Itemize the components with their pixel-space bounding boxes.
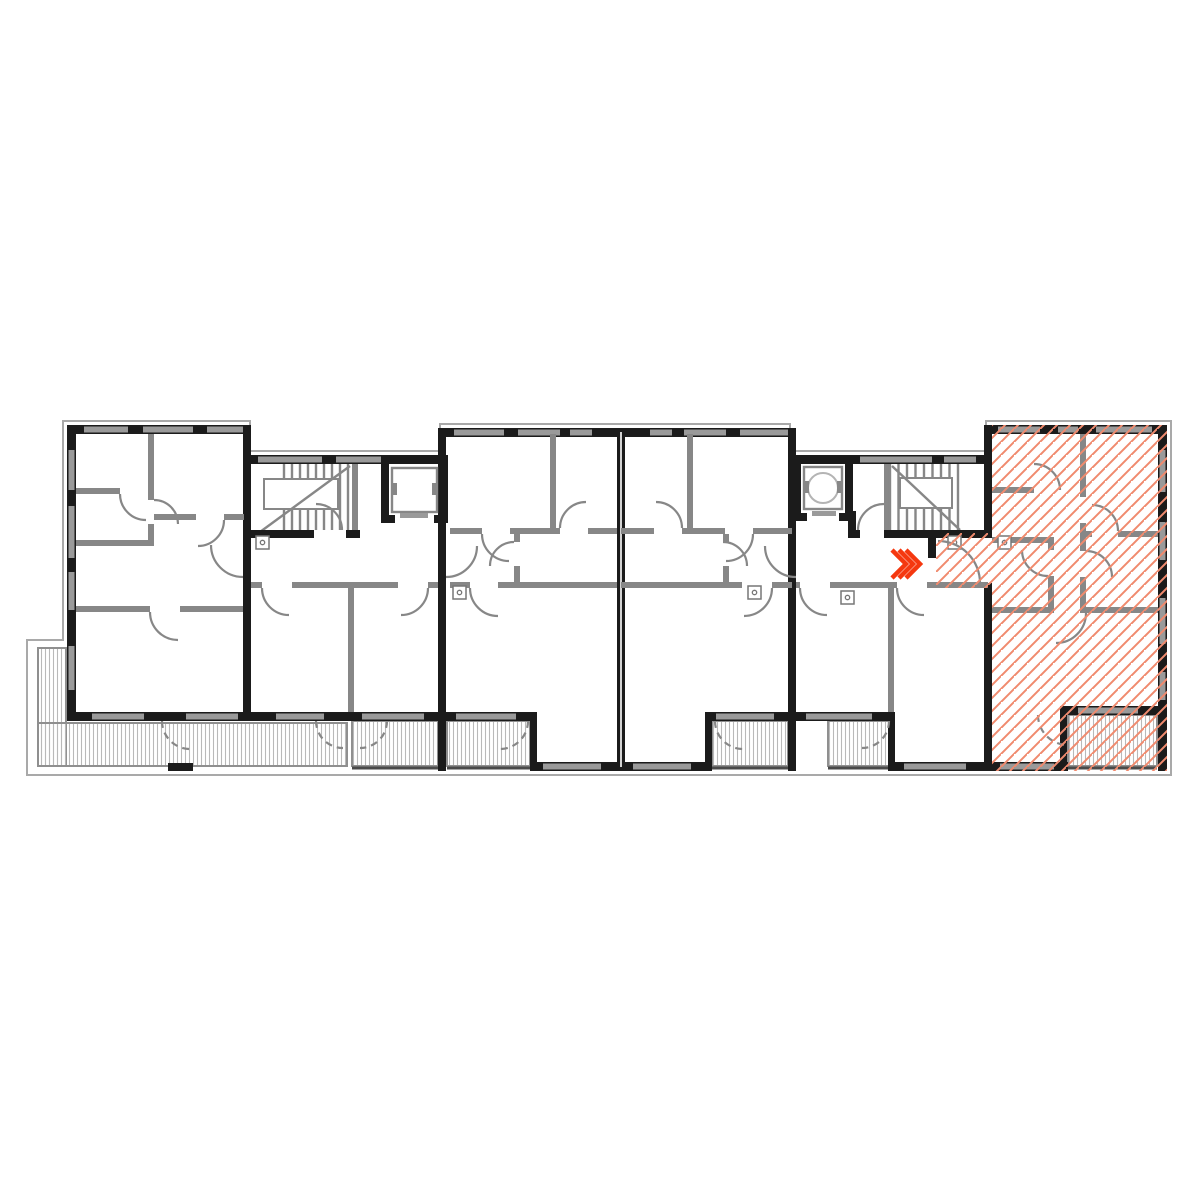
terrace-step	[168, 763, 193, 771]
intercom-icon	[748, 586, 761, 599]
selected-unit-hatch	[936, 425, 1167, 771]
intercom-icon	[841, 591, 854, 604]
unit-center-east	[621, 434, 792, 749]
balcony-center-east	[712, 721, 788, 768]
floor-plan-svg	[0, 0, 1200, 1200]
east-core	[765, 455, 988, 748]
unit-west-end	[76, 434, 244, 749]
balcony-center-west	[447, 721, 530, 768]
balcony-west-core	[352, 721, 438, 768]
entrance-arrow-icon	[892, 550, 920, 578]
west-staircase	[243, 464, 360, 538]
floor-plan-canvas	[0, 0, 1200, 1200]
unit-center-west	[450, 434, 617, 749]
east-elevator-icon	[793, 455, 853, 521]
west-elevator-icon	[381, 455, 448, 523]
east-staircase	[848, 464, 988, 538]
balcony-east-core	[828, 721, 890, 768]
intercom-icon	[256, 536, 269, 549]
west-terrace	[38, 648, 347, 771]
selected-apartment-region[interactable]	[936, 425, 1167, 771]
intercom-icon	[453, 586, 466, 599]
